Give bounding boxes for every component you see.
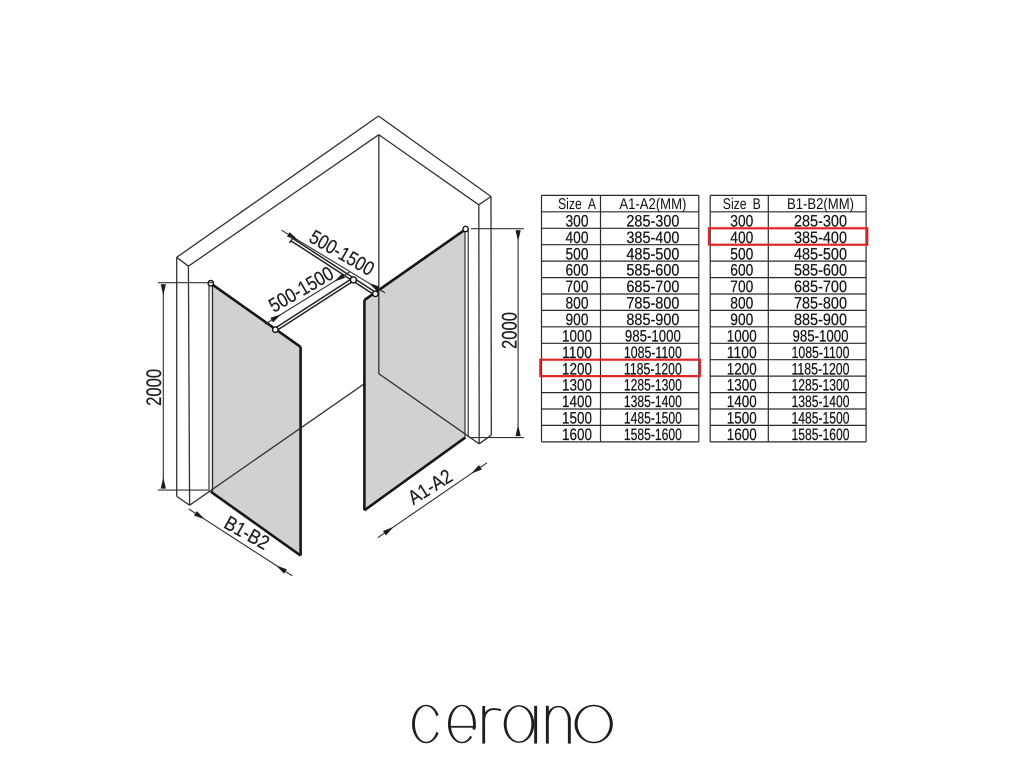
svg-text:1385-1400: 1385-1400	[624, 393, 682, 411]
svg-text:600: 600	[566, 262, 589, 280]
svg-text:1585-1600: 1585-1600	[624, 426, 682, 444]
svg-text:585-600: 585-600	[626, 262, 679, 280]
svg-text:900: 900	[566, 311, 589, 329]
svg-text:1600: 1600	[727, 426, 757, 444]
svg-text:B1-B2(MM): B1-B2(MM)	[787, 196, 854, 213]
svg-text:885-900: 885-900	[794, 311, 847, 329]
svg-text:1000: 1000	[727, 327, 757, 345]
svg-text:385-400: 385-400	[626, 229, 679, 247]
svg-text:785-800: 785-800	[626, 295, 679, 313]
svg-text:785-800: 785-800	[794, 295, 847, 313]
svg-text:1500: 1500	[562, 410, 592, 428]
svg-text:285-300: 285-300	[626, 212, 679, 230]
svg-text:Size A: Size A	[558, 196, 597, 213]
svg-text:585-600: 585-600	[794, 262, 847, 280]
svg-text:485-500: 485-500	[794, 245, 847, 263]
svg-text:1585-1600: 1585-1600	[792, 426, 850, 444]
svg-text:1400: 1400	[562, 393, 592, 411]
svg-text:1085-1100: 1085-1100	[792, 344, 850, 362]
svg-text:885-900: 885-900	[626, 311, 679, 329]
svg-text:2000: 2000	[499, 312, 522, 349]
svg-text:685-700: 685-700	[626, 278, 679, 296]
svg-text:400: 400	[566, 229, 589, 247]
svg-text:Size B: Size B	[723, 196, 761, 213]
svg-text:1300: 1300	[727, 377, 757, 395]
svg-text:1500: 1500	[727, 410, 757, 428]
svg-text:700: 700	[730, 278, 753, 296]
svg-text:A1-A2(MM): A1-A2(MM)	[619, 196, 686, 213]
svg-text:1485-1500: 1485-1500	[624, 410, 682, 428]
svg-text:600: 600	[730, 262, 753, 280]
svg-text:1385-1400: 1385-1400	[792, 393, 850, 411]
svg-text:1600: 1600	[562, 426, 592, 444]
svg-text:985-1000: 985-1000	[793, 327, 849, 345]
svg-text:1285-1300: 1285-1300	[624, 377, 682, 395]
svg-text:500: 500	[730, 245, 753, 263]
svg-text:300: 300	[566, 212, 589, 230]
svg-text:1285-1300: 1285-1300	[792, 377, 850, 395]
svg-text:985-1000: 985-1000	[625, 327, 681, 345]
svg-text:800: 800	[730, 295, 753, 313]
svg-text:1100: 1100	[727, 344, 757, 362]
svg-text:485-500: 485-500	[626, 245, 679, 263]
svg-text:800: 800	[566, 295, 589, 313]
svg-text:1400: 1400	[727, 393, 757, 411]
svg-text:1300: 1300	[562, 377, 592, 395]
svg-text:900: 900	[730, 311, 753, 329]
svg-text:700: 700	[566, 278, 589, 296]
svg-text:500: 500	[566, 245, 589, 263]
svg-text:1185-1200: 1185-1200	[792, 360, 850, 378]
svg-text:1200: 1200	[727, 360, 757, 378]
svg-text:1485-1500: 1485-1500	[792, 410, 850, 428]
svg-text:2000: 2000	[143, 369, 166, 406]
svg-text:1000: 1000	[562, 327, 592, 345]
svg-text:685-700: 685-700	[794, 278, 847, 296]
